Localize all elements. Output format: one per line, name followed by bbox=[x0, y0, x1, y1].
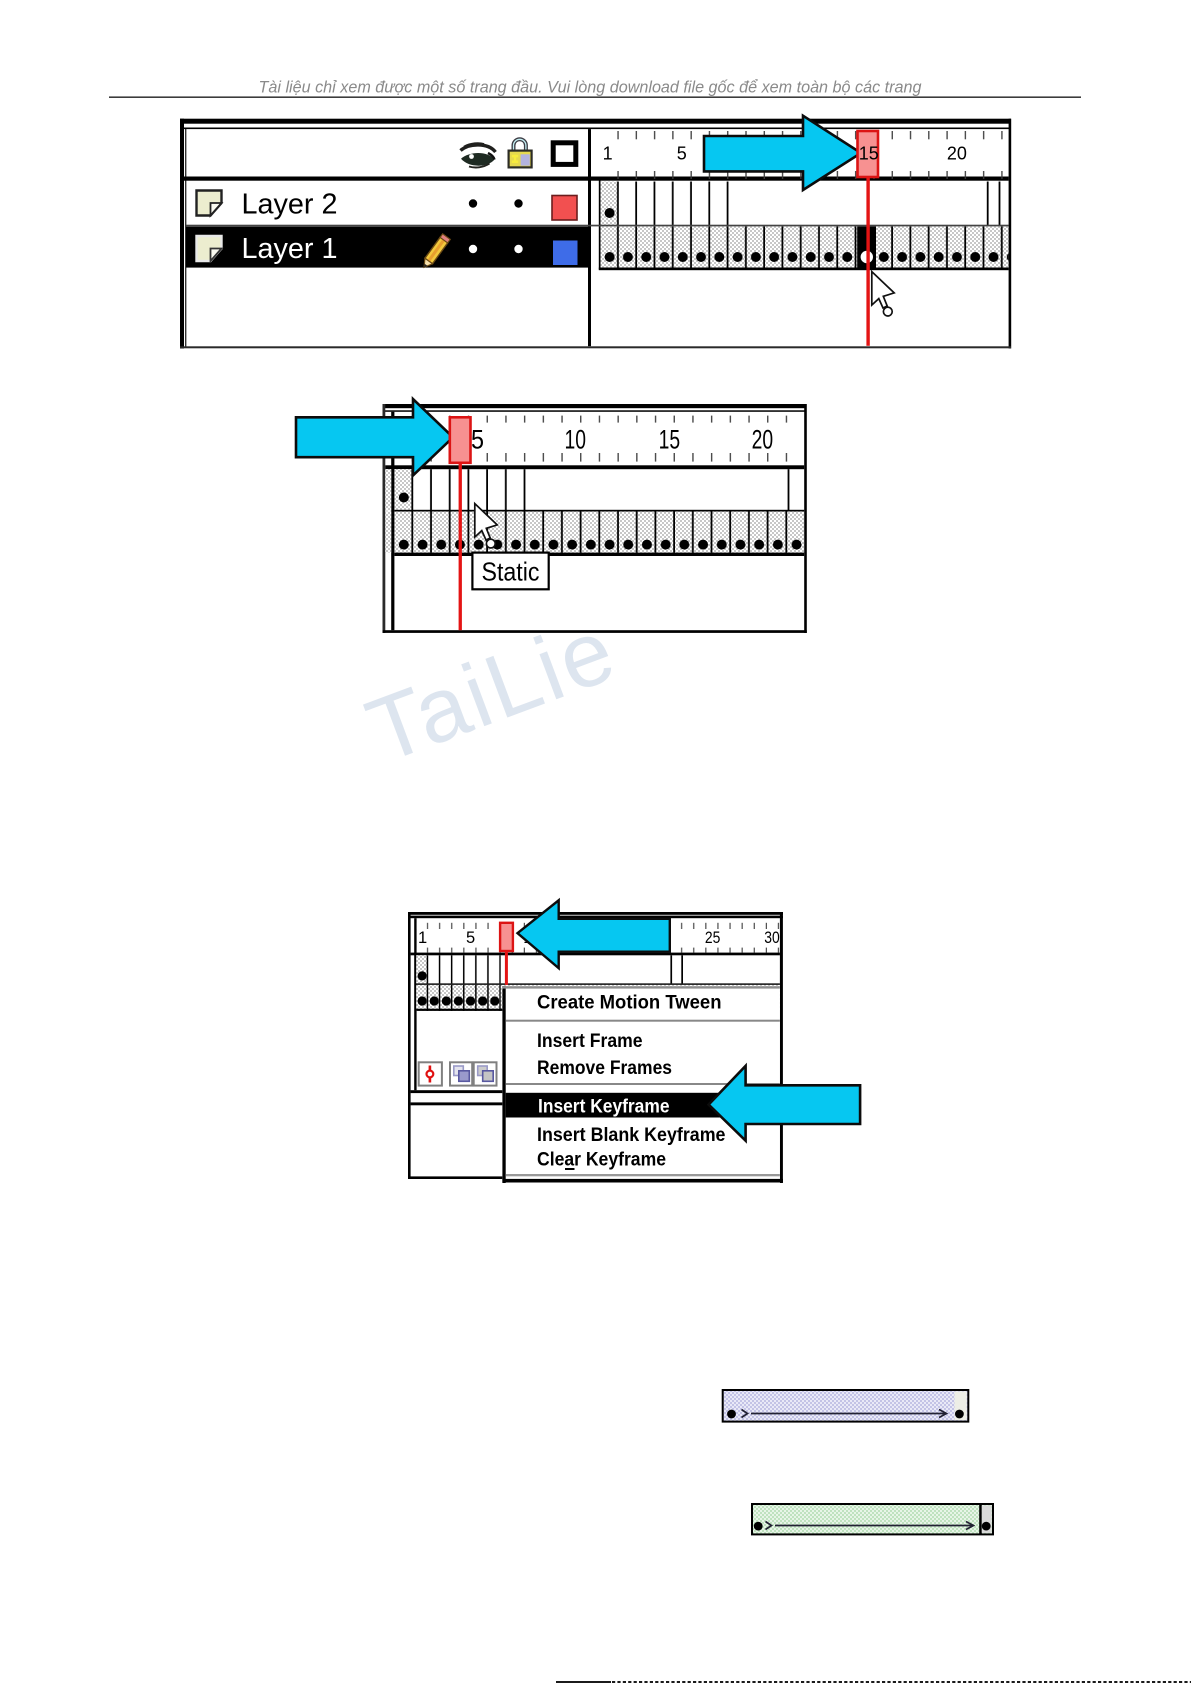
svg-text:Layer 1: Layer 1 bbox=[242, 233, 338, 265]
svg-text:Clear Keyframe: Clear Keyframe bbox=[537, 1150, 666, 1171]
svg-text:20: 20 bbox=[947, 144, 967, 164]
svg-text:25: 25 bbox=[705, 929, 721, 947]
svg-text:Tài liệu chỉ xem được một số t: Tài liệu chỉ xem được một số trang đầu. … bbox=[259, 78, 923, 97]
svg-text:Insert Keyframe: Insert Keyframe bbox=[538, 1097, 670, 1118]
svg-text:Insert Blank Keyframe: Insert Blank Keyframe bbox=[537, 1125, 726, 1146]
svg-text:Remove Frames: Remove Frames bbox=[537, 1058, 672, 1079]
svg-text:Static: Static bbox=[482, 557, 540, 587]
svg-text:TaiLie: TaiLie bbox=[355, 599, 630, 783]
svg-text:Create Motion Tween: Create Motion Tween bbox=[537, 993, 722, 1014]
svg-text:1: 1 bbox=[603, 144, 613, 164]
svg-text:30: 30 bbox=[764, 929, 780, 947]
svg-text:1: 1 bbox=[418, 929, 427, 947]
svg-text:5: 5 bbox=[466, 929, 475, 947]
svg-text:15: 15 bbox=[859, 144, 879, 164]
svg-text:15: 15 bbox=[659, 425, 681, 455]
svg-text:20: 20 bbox=[752, 425, 774, 455]
svg-text:Layer 2: Layer 2 bbox=[242, 189, 338, 221]
svg-text:5: 5 bbox=[471, 425, 484, 455]
svg-text:Insert Frame: Insert Frame bbox=[537, 1031, 643, 1052]
svg-text:5: 5 bbox=[677, 144, 687, 164]
svg-text:10: 10 bbox=[565, 425, 587, 455]
